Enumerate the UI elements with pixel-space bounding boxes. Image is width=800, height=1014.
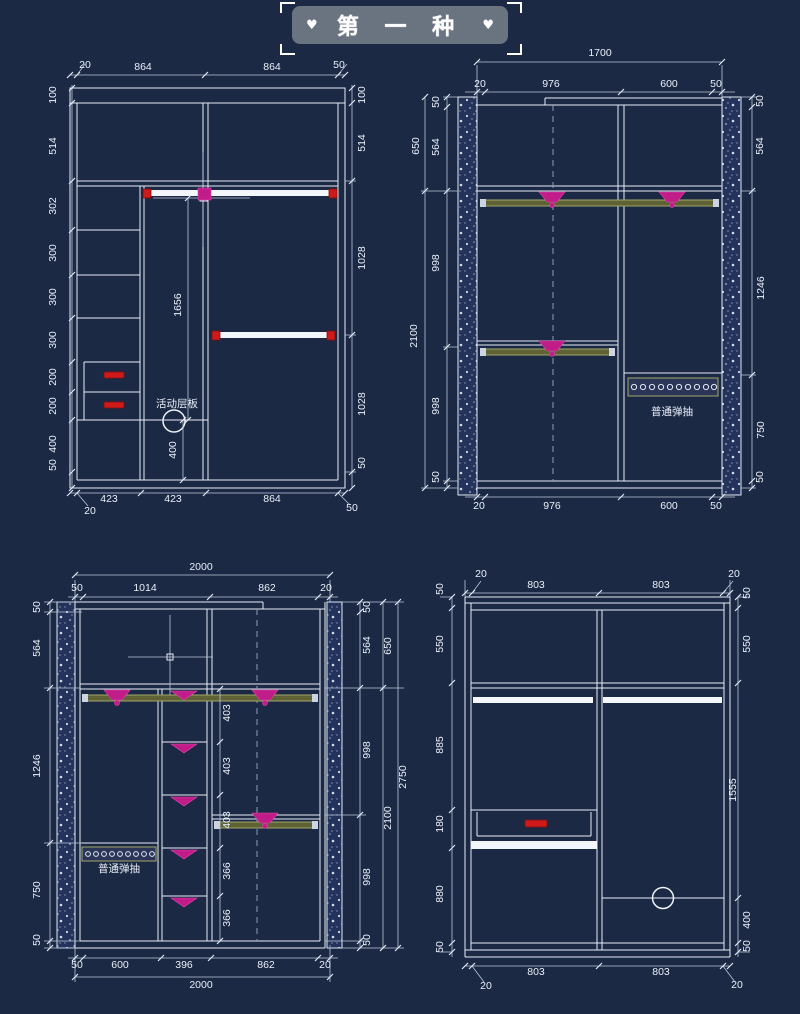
rod-bracket-dot xyxy=(550,352,555,357)
dim-label: 100 xyxy=(47,86,59,104)
rod-bracket xyxy=(539,192,685,351)
dim-label: 1246 xyxy=(31,754,43,778)
dim-label: 998 xyxy=(430,254,442,272)
dim-label: 514 xyxy=(356,134,368,152)
rod-bracket-dot xyxy=(550,203,555,208)
rod-end-cap xyxy=(212,331,220,340)
rod-end-cap xyxy=(609,348,615,356)
dim-label: 1028 xyxy=(356,246,368,270)
dim-label: 2750 xyxy=(397,765,409,789)
speckled-side-panel xyxy=(327,602,342,948)
drawer-handle xyxy=(104,372,124,378)
dim-label: 550 xyxy=(741,635,753,653)
dim-label: 403 xyxy=(221,757,233,775)
rod-bracket xyxy=(104,690,278,823)
panel-top-left: 2086486450100514302300300300200200400501… xyxy=(47,59,368,517)
dim-label: 50 xyxy=(710,500,722,512)
dim-label: 564 xyxy=(754,137,766,155)
dim-label: 514 xyxy=(47,137,59,155)
dim-label: 300 xyxy=(47,331,59,349)
dim-label: 864 xyxy=(134,61,152,73)
rod-end-cap xyxy=(480,348,486,356)
dim-label: 50 xyxy=(333,59,345,71)
dim-label: 20 xyxy=(731,979,743,991)
dim-label: 50 xyxy=(47,459,59,471)
annotation-label: 活动层板 xyxy=(156,397,198,410)
annotation-label: 普通弹抽 xyxy=(651,405,693,418)
dim-label: 1700 xyxy=(588,47,612,59)
dim-label: 50 xyxy=(346,502,358,514)
dim-label: 998 xyxy=(361,741,373,759)
dim-label: 976 xyxy=(542,78,560,90)
drawer-front xyxy=(82,847,156,861)
dim-label: 864 xyxy=(263,493,281,505)
dim-label: 423 xyxy=(100,493,118,505)
dim-label: 650 xyxy=(382,637,394,655)
hanging-rod xyxy=(482,200,717,206)
dim-label: 564 xyxy=(430,138,442,156)
dim-label: 366 xyxy=(221,909,233,927)
highlight-shelf xyxy=(471,841,597,849)
dim-label: 50 xyxy=(71,959,83,971)
speckled-side-panel xyxy=(57,602,75,948)
dim-label: 2000 xyxy=(189,979,213,991)
dim-label: 750 xyxy=(31,881,43,899)
dim-label: 300 xyxy=(47,244,59,262)
dim-label: 600 xyxy=(660,78,678,90)
dim-label: 1246 xyxy=(755,276,767,300)
rod-end-cap xyxy=(143,189,151,198)
dim-label: 20 xyxy=(79,59,91,71)
drawer-handle xyxy=(104,402,124,408)
dim-label: 803 xyxy=(527,579,545,591)
dim-label: 885 xyxy=(434,736,446,754)
hanging-rod xyxy=(473,697,593,703)
dim-label: 50 xyxy=(741,587,753,599)
dim-label: 50 xyxy=(430,471,442,483)
dim-label: 302 xyxy=(47,197,59,215)
hanging-rod xyxy=(151,190,329,196)
dim-label: 50 xyxy=(356,457,368,469)
drawer-pulls xyxy=(171,691,197,907)
dim-label: 864 xyxy=(263,61,281,73)
dim-label: 750 xyxy=(755,421,767,439)
dim-label: 50 xyxy=(361,601,373,613)
dim-label: 1656 xyxy=(172,293,184,317)
cabinet-frame xyxy=(477,98,722,488)
dim-label: 366 xyxy=(221,862,233,880)
dim-label: 100 xyxy=(356,86,368,104)
dim-label: 50 xyxy=(710,78,722,90)
rod-end-cap xyxy=(480,199,486,207)
rod-end-cap xyxy=(312,821,318,829)
panel-bottom-right: 2080380320505055088518088050550155540050… xyxy=(434,568,753,992)
dimension-lines xyxy=(440,580,750,982)
dim-label: 1555 xyxy=(727,778,739,802)
dim-label: 862 xyxy=(258,582,276,594)
dim-label: 400 xyxy=(741,911,753,929)
dim-label: 403 xyxy=(221,811,233,829)
rod-end-cap xyxy=(214,821,220,829)
dim-label: 20 xyxy=(728,568,740,580)
dim-label: 803 xyxy=(527,966,545,978)
cabinet-frame xyxy=(70,88,345,488)
dim-label: 50 xyxy=(754,471,766,483)
cabinet-frame xyxy=(75,602,325,948)
dim-label: 20 xyxy=(474,78,486,90)
dim-label: 880 xyxy=(434,885,446,903)
dim-label: 50 xyxy=(434,583,446,595)
dim-label: 423 xyxy=(164,493,182,505)
speckled-side-panel xyxy=(458,97,477,495)
cabinet-frame xyxy=(465,597,730,957)
dim-label: 976 xyxy=(543,500,561,512)
rod-bracket-dot xyxy=(263,701,268,706)
speckled-side-panel xyxy=(722,97,741,495)
dim-label: 803 xyxy=(652,579,670,591)
panel-top-right: 1700209766005065021005056499899850505641… xyxy=(408,47,767,512)
crosshair-cursor xyxy=(128,615,213,700)
dim-label: 400 xyxy=(167,441,179,459)
dim-label: 2000 xyxy=(189,561,213,573)
drawer-handle xyxy=(525,820,547,827)
dimension-lines xyxy=(70,64,356,506)
dim-label: 564 xyxy=(31,639,43,657)
rod-end-cap xyxy=(329,189,337,198)
dim-label: 403 xyxy=(221,704,233,722)
dim-label: 1014 xyxy=(133,582,157,594)
dim-label: 20 xyxy=(473,500,485,512)
dim-label: 20 xyxy=(320,582,332,594)
dim-label: 50 xyxy=(434,941,446,953)
rod-bracket xyxy=(198,188,211,200)
dim-label: 50 xyxy=(741,940,753,952)
rod-end-cap xyxy=(327,331,335,340)
dim-label: 200 xyxy=(47,368,59,386)
dim-label: 2100 xyxy=(382,806,394,830)
dimension-ticks xyxy=(67,72,355,496)
dim-label: 998 xyxy=(361,868,373,886)
dim-label: 803 xyxy=(652,966,670,978)
dim-label: 20 xyxy=(480,980,492,992)
dim-label: 650 xyxy=(410,137,422,155)
dim-label: 300 xyxy=(47,288,59,306)
cad-sheet: ♥ 第 一 种 ♥ xyxy=(0,0,800,1014)
dim-label: 50 xyxy=(430,96,442,108)
dimension-ticks xyxy=(449,590,741,969)
annotation-label: 普通弹抽 xyxy=(98,862,140,875)
rod-end-cap xyxy=(82,694,88,702)
dim-label: 50 xyxy=(71,582,83,594)
dim-label: 200 xyxy=(47,397,59,415)
dim-label: 50 xyxy=(361,934,373,946)
dim-label: 998 xyxy=(430,397,442,415)
dim-label: 2100 xyxy=(408,324,420,348)
rod-end-cap xyxy=(713,199,719,207)
hanging-rod xyxy=(219,332,327,338)
dim-label: 400 xyxy=(47,435,59,453)
rod-bracket-dot xyxy=(115,701,120,706)
dim-label: 20 xyxy=(475,568,487,580)
rod-bracket-dot xyxy=(670,203,675,208)
dim-label: 600 xyxy=(111,959,129,971)
dim-label: 396 xyxy=(175,959,193,971)
dim-label: 180 xyxy=(434,815,446,833)
rod-bracket-dot xyxy=(263,824,268,829)
dim-label: 600 xyxy=(660,500,678,512)
dim-label: 564 xyxy=(361,636,373,654)
dim-label: 50 xyxy=(31,934,43,946)
dim-label: 862 xyxy=(257,959,275,971)
hanging-rod xyxy=(603,697,722,703)
rod-end-cap xyxy=(312,694,318,702)
dim-label: 50 xyxy=(31,601,43,613)
dim-label: 1028 xyxy=(356,392,368,416)
dim-label: 20 xyxy=(319,959,331,971)
dim-label: 550 xyxy=(434,635,446,653)
dim-label: 20 xyxy=(84,505,96,517)
panel-bottom-left: 2000501014862205056412467505050564998998… xyxy=(31,561,409,991)
dim-label: 50 xyxy=(754,95,766,107)
cad-drawing: 2086486450100514302300300300200200400501… xyxy=(0,0,800,1014)
